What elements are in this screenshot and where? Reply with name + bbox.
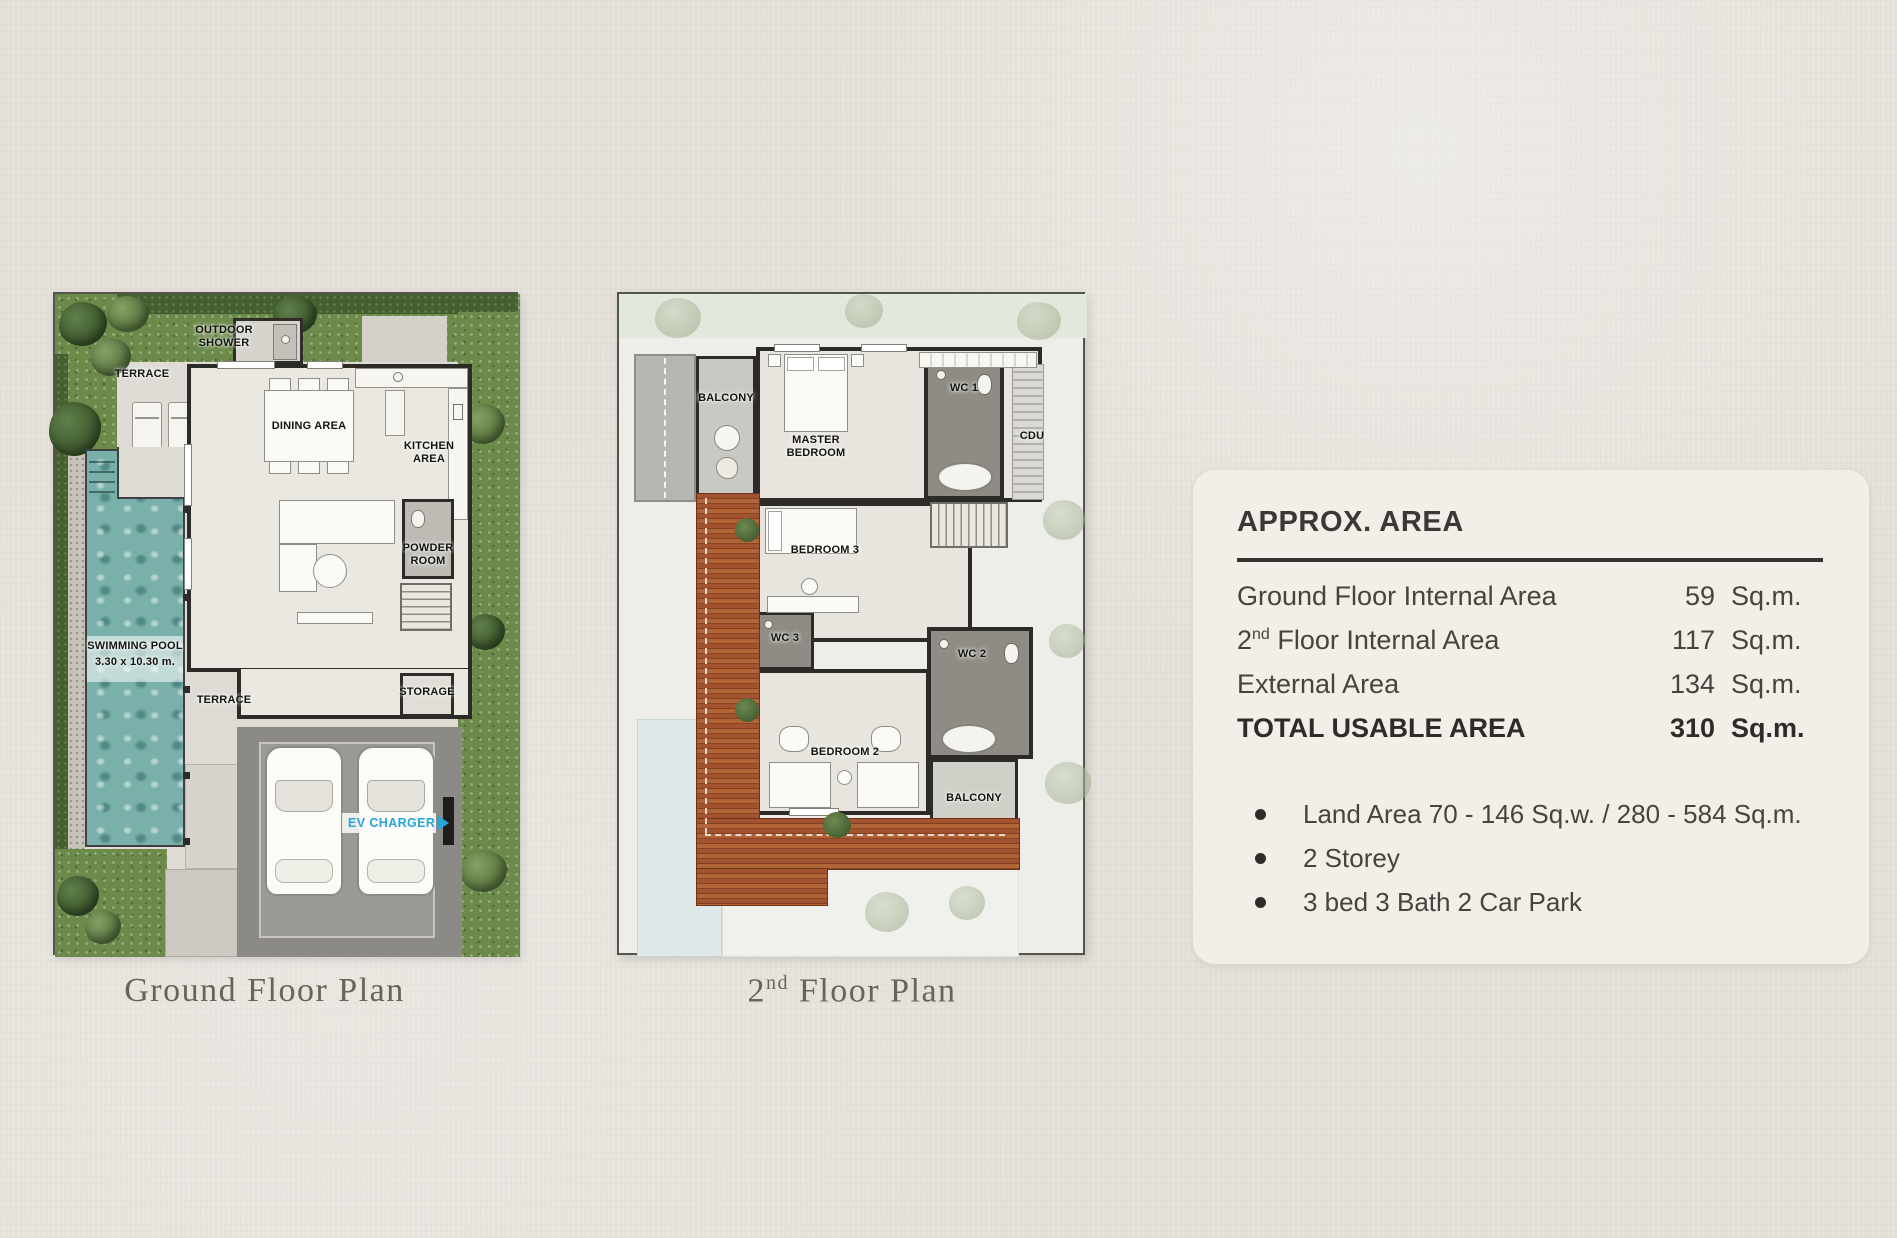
window — [307, 361, 343, 369]
balcony-top-label: BALCONY — [693, 392, 759, 405]
terrace-mid-label: TERRACE — [184, 694, 264, 707]
toilet-icon — [411, 510, 425, 528]
ground-floor-plan: OUTDOOR SHOWER TERRACE SWIMMING POOL 3.3… — [53, 292, 518, 955]
chair-icon — [298, 461, 320, 474]
pool-post — [183, 838, 190, 845]
ground-floor-caption-text: Ground Floor Plan — [124, 972, 405, 1009]
bathtub-icon — [941, 724, 997, 754]
bed-icon — [857, 762, 919, 808]
area-row-value: 59 — [1635, 581, 1715, 612]
kitchen-area-label: KITCHEN AREA — [389, 440, 469, 466]
entry-walkway — [165, 869, 239, 957]
side-path — [362, 316, 447, 362]
sink-icon — [393, 372, 403, 382]
ev-charger-label: EV CHARGER — [342, 816, 435, 830]
area-panel-rule — [1237, 558, 1823, 562]
nightstand-icon — [851, 354, 864, 367]
spec-bullet-text: Land Area 70 - 146 Sq.w. / 280 - 584 Sq.… — [1303, 799, 1802, 830]
window — [184, 444, 192, 506]
area-row-value: 310 — [1635, 713, 1715, 744]
wc1-label: WC 1 — [931, 382, 997, 395]
spec-bullet: 3 bed 3 Bath 2 Car Park — [1255, 880, 1835, 924]
tree-icon — [865, 892, 909, 932]
desk-icon — [767, 596, 859, 613]
porch — [185, 764, 239, 869]
tiled-roof — [697, 869, 827, 905]
pool-post — [183, 772, 190, 779]
shower-icon — [936, 370, 946, 380]
area-row-unit: Sq.m. — [1731, 625, 1823, 656]
nightstand-icon — [768, 354, 781, 367]
window — [184, 538, 192, 590]
car-icon — [265, 746, 343, 896]
coffee-table-icon — [313, 554, 347, 588]
brochure-page: OUTDOOR SHOWER TERRACE SWIMMING POOL 3.3… — [0, 0, 1897, 1238]
area-row-label: 2 — [1237, 625, 1252, 655]
bedroom3-label: BEDROOM 3 — [777, 544, 873, 557]
area-row-unit: Sq.m. — [1731, 713, 1823, 744]
tree-icon — [845, 294, 883, 328]
spec-bullet-text: 3 bed 3 Bath 2 Car Park — [1303, 887, 1582, 918]
balcony-bottom-label: BALCONY — [935, 792, 1013, 805]
ground-floor-caption: Ground Floor Plan — [92, 972, 437, 1010]
pool-post — [183, 506, 190, 513]
bullet-dot-icon — [1255, 897, 1266, 908]
second-floor-plan: BALCONY MASTER BEDROOM WC 1 CDU BEDROOM … — [617, 292, 1085, 955]
pool-steps-icon — [89, 453, 115, 497]
shrub-icon — [735, 698, 759, 722]
area-rows: Ground Floor Internal Area 59 Sq.m. 2nd … — [1237, 574, 1823, 750]
wardrobe-icon — [919, 352, 1037, 368]
storage-label: STORAGE — [388, 686, 466, 699]
outdoor-shower-label: OUTDOOR SHOWER — [184, 324, 264, 350]
second-floor-caption-sup: nd — [766, 972, 789, 994]
wc2-label: WC 2 — [941, 648, 1003, 661]
shower-icon — [764, 620, 773, 629]
pool-dimensions-label: 3.30 x 10.30 m. — [77, 656, 193, 669]
area-panel: APPROX. AREA Ground Floor Internal Area … — [1193, 470, 1869, 964]
tree-icon — [949, 886, 985, 920]
area-row-value: 134 — [1635, 669, 1715, 700]
balcony-table-icon — [714, 425, 740, 451]
stairs — [930, 502, 1008, 548]
area-row-value: 117 — [1635, 625, 1715, 656]
area-row: External Area 134 Sq.m. — [1237, 662, 1823, 706]
window — [861, 344, 907, 352]
chair-icon — [269, 378, 291, 391]
tv-console-icon — [297, 612, 373, 624]
bullet-dot-icon — [1255, 809, 1266, 820]
shrub-icon — [735, 518, 759, 542]
shrub-icon — [823, 812, 851, 838]
swimming-pool-label: SWIMMING POOL — [77, 640, 193, 653]
terrace-top-label: TERRACE — [102, 368, 182, 381]
tree-icon — [1045, 762, 1091, 804]
side-table-icon — [837, 770, 852, 785]
pool-post — [183, 594, 190, 601]
area-row-unit: Sq.m. — [1731, 581, 1823, 612]
area-panel-title: APPROX. AREA — [1237, 506, 1464, 539]
balcony-chair-icon — [716, 457, 738, 479]
wc3-label: WC 3 — [757, 632, 813, 645]
stairs — [400, 583, 452, 631]
area-row-unit: Sq.m. — [1731, 669, 1823, 700]
area-row: Ground Floor Internal Area 59 Sq.m. — [1237, 574, 1823, 618]
chair-icon — [298, 378, 320, 391]
pillow-icon — [787, 357, 814, 371]
pool-post — [183, 686, 190, 693]
chair-icon — [269, 461, 291, 474]
area-row-label: TOTAL USABLE AREA — [1237, 713, 1526, 743]
chair-icon — [327, 378, 349, 391]
spec-bullets: Land Area 70 - 146 Sq.w. / 280 - 584 Sq.… — [1255, 792, 1835, 924]
second-floor-caption: 2nd Floor Plan — [692, 972, 1012, 1010]
pool-notch — [117, 447, 187, 499]
area-row-label: External Area — [1237, 669, 1399, 699]
bedroom2-label: BEDROOM 2 — [795, 746, 895, 759]
chair-icon — [801, 578, 818, 595]
roof-dash-line — [664, 358, 666, 498]
area-row-total: TOTAL USABLE AREA 310 Sq.m. — [1237, 706, 1823, 750]
kitchen-island — [385, 390, 405, 436]
kitchen-counter — [355, 368, 468, 388]
bullet-dot-icon — [1255, 853, 1266, 864]
powder-room-label: POWDER ROOM — [392, 542, 464, 568]
window — [217, 361, 275, 369]
sofa-icon — [279, 500, 395, 544]
tree-icon — [1049, 624, 1085, 658]
area-row: 2nd Floor Internal Area 117 Sq.m. — [1237, 618, 1823, 662]
area-row-label: Ground Floor Internal Area — [1237, 581, 1557, 611]
ev-charger-band: EV CHARGER — [342, 813, 436, 833]
bathtub-icon — [937, 462, 993, 492]
tree-icon — [655, 298, 701, 338]
window — [774, 344, 820, 352]
roof-dash-line — [705, 498, 707, 834]
toilet-icon — [1004, 643, 1019, 664]
chair-icon — [327, 461, 349, 474]
cdu-label: CDU — [1011, 430, 1053, 443]
second-floor-caption-rest: Floor Plan — [789, 972, 957, 1009]
tree-icon — [1043, 500, 1085, 540]
master-bedroom-label: MASTER BEDROOM — [771, 434, 861, 460]
spec-bullet-text: 2 Storey — [1303, 843, 1400, 874]
roof-dash-line — [705, 834, 1005, 836]
spec-bullet: Land Area 70 - 146 Sq.w. / 280 - 584 Sq.… — [1255, 792, 1835, 836]
stove-icon — [453, 404, 463, 420]
second-floor-caption-num: 2 — [747, 972, 766, 1009]
tiled-roof — [697, 819, 1019, 869]
tree-icon — [1017, 302, 1061, 340]
shower-drain-icon — [281, 335, 290, 344]
ev-arrow-icon — [437, 815, 449, 831]
spec-bullet: 2 Storey — [1255, 836, 1835, 880]
sofa-chaise-icon — [279, 544, 317, 592]
bed-icon — [769, 762, 831, 808]
pillow-icon — [818, 357, 845, 371]
dining-area-label: DINING AREA — [267, 420, 351, 433]
balcony-top-room — [696, 356, 756, 502]
